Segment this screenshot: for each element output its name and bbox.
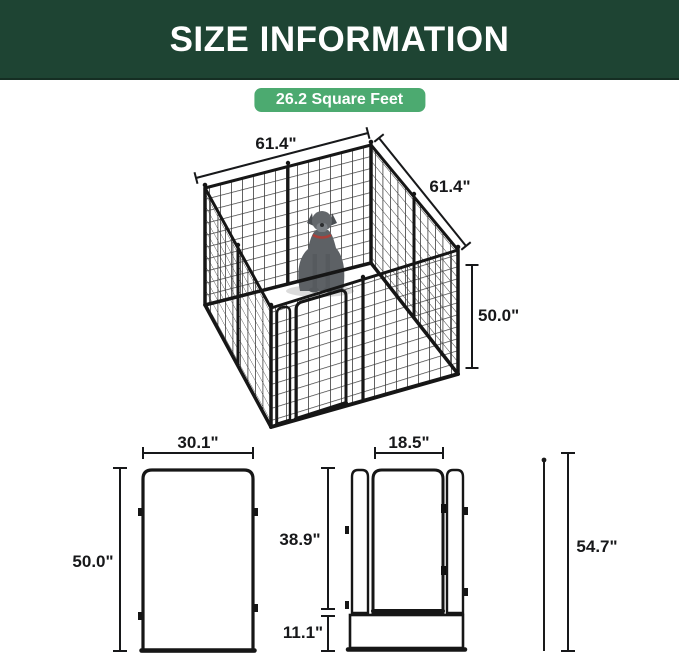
- dog-paw: [309, 288, 319, 293]
- door-bottom-height-label: 11.1": [283, 623, 323, 642]
- door-panel-view: 18.5" 38.9" 11.1": [279, 433, 468, 651]
- dog-leg: [313, 254, 318, 290]
- panel-hook: [345, 526, 349, 534]
- playpen-dimension-diagram: 61.4" 61.4" 50.0" 30.1" 50.0": [0, 0, 679, 655]
- size-information-page: SIZE INFORMATION 26.2 Square Feet: [0, 0, 679, 655]
- panel-width-label: 30.1": [177, 433, 218, 452]
- panel-height-label: 50.0": [72, 552, 113, 571]
- door-hinge: [441, 566, 446, 575]
- door-bottom-section: [350, 615, 463, 648]
- door-side-panel-left: [352, 470, 368, 613]
- pen-depth-label: 61.4": [429, 177, 470, 196]
- pen-width-label: 61.4": [255, 134, 296, 153]
- panel-hook: [464, 588, 468, 596]
- stake-height-label: 54.7": [576, 537, 617, 556]
- panel-hook: [138, 508, 143, 516]
- playpen-isometric-view: [203, 140, 461, 427]
- door-side-panel-right: [447, 470, 463, 613]
- panel-hook: [138, 612, 143, 620]
- door-frame: [373, 470, 443, 613]
- dog-nose: [320, 223, 324, 227]
- single-panel-view: 30.1" 50.0": [72, 433, 258, 651]
- door-hinge: [441, 504, 446, 513]
- panel-frame: [143, 470, 253, 651]
- door-width-label: 18.5": [388, 433, 429, 452]
- panel-hook: [464, 507, 468, 515]
- panel-hook: [253, 508, 258, 516]
- panel-hook: [253, 604, 258, 612]
- pen-height-label: 50.0": [478, 306, 519, 325]
- ground-stake-view: 54.7": [542, 453, 618, 651]
- stake-ball-top: [542, 458, 547, 463]
- panel-hook: [345, 601, 349, 609]
- door-height-label: 38.9": [279, 530, 320, 549]
